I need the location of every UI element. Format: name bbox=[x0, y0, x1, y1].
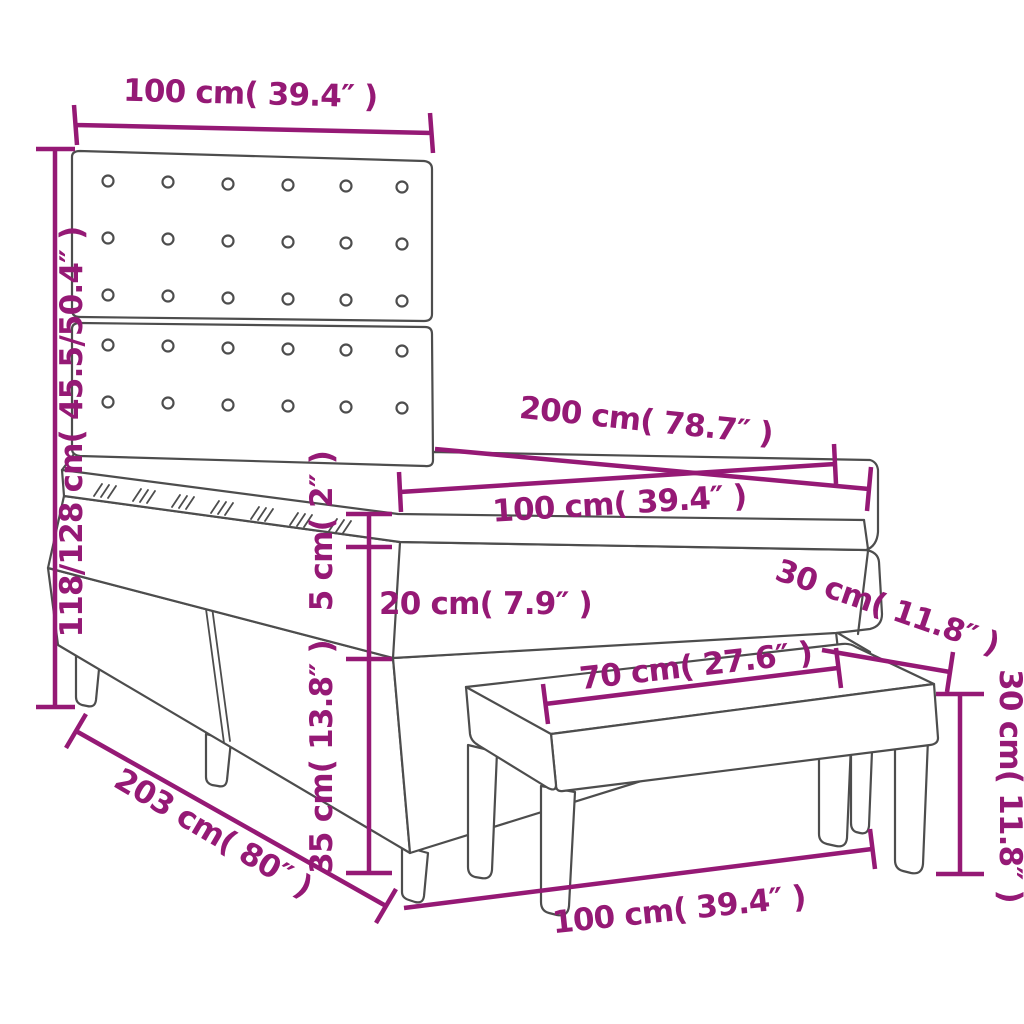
label-bench-height: 30 cm( 11.8″ ) bbox=[992, 669, 1024, 903]
product-dimension-diagram: 100 cm( 39.4″ ) 118/128 cm( 45.5/50.4″ )… bbox=[0, 0, 1024, 1024]
label-headboard-width: 100 cm( 39.4″ ) bbox=[123, 73, 378, 116]
bed-leg-front-corner bbox=[402, 846, 428, 902]
headboard-lower-panel bbox=[72, 323, 433, 466]
bench-leg-front-right bbox=[895, 735, 928, 873]
bench-leg-back-left bbox=[468, 745, 497, 878]
label-mattress-thickness: 20 cm( 7.9″ ) bbox=[379, 586, 592, 622]
dim-bench-height-line bbox=[936, 694, 984, 874]
diagram-canvas: 100 cm( 39.4″ ) 118/128 cm( 45.5/50.4″ )… bbox=[0, 0, 1024, 1024]
label-bed-length: 200 cm( 78.7″ ) bbox=[518, 390, 775, 452]
headboard-upper-panel bbox=[72, 151, 432, 321]
bench-leg-inner-right bbox=[851, 748, 872, 833]
label-topper-thickness: 5 cm( 2″ ) bbox=[304, 451, 340, 611]
headboard bbox=[72, 151, 433, 466]
bench-leg-front-left bbox=[541, 786, 575, 915]
dim-headboard-width-line bbox=[74, 105, 433, 153]
label-base-height: 35 cm( 13.8″ ) bbox=[304, 640, 340, 874]
label-overall-height: 118/128 cm( 45.5/50.4″ ) bbox=[54, 226, 90, 637]
label-bench-total-width: 100 cm( 39.4″ ) bbox=[551, 879, 808, 941]
